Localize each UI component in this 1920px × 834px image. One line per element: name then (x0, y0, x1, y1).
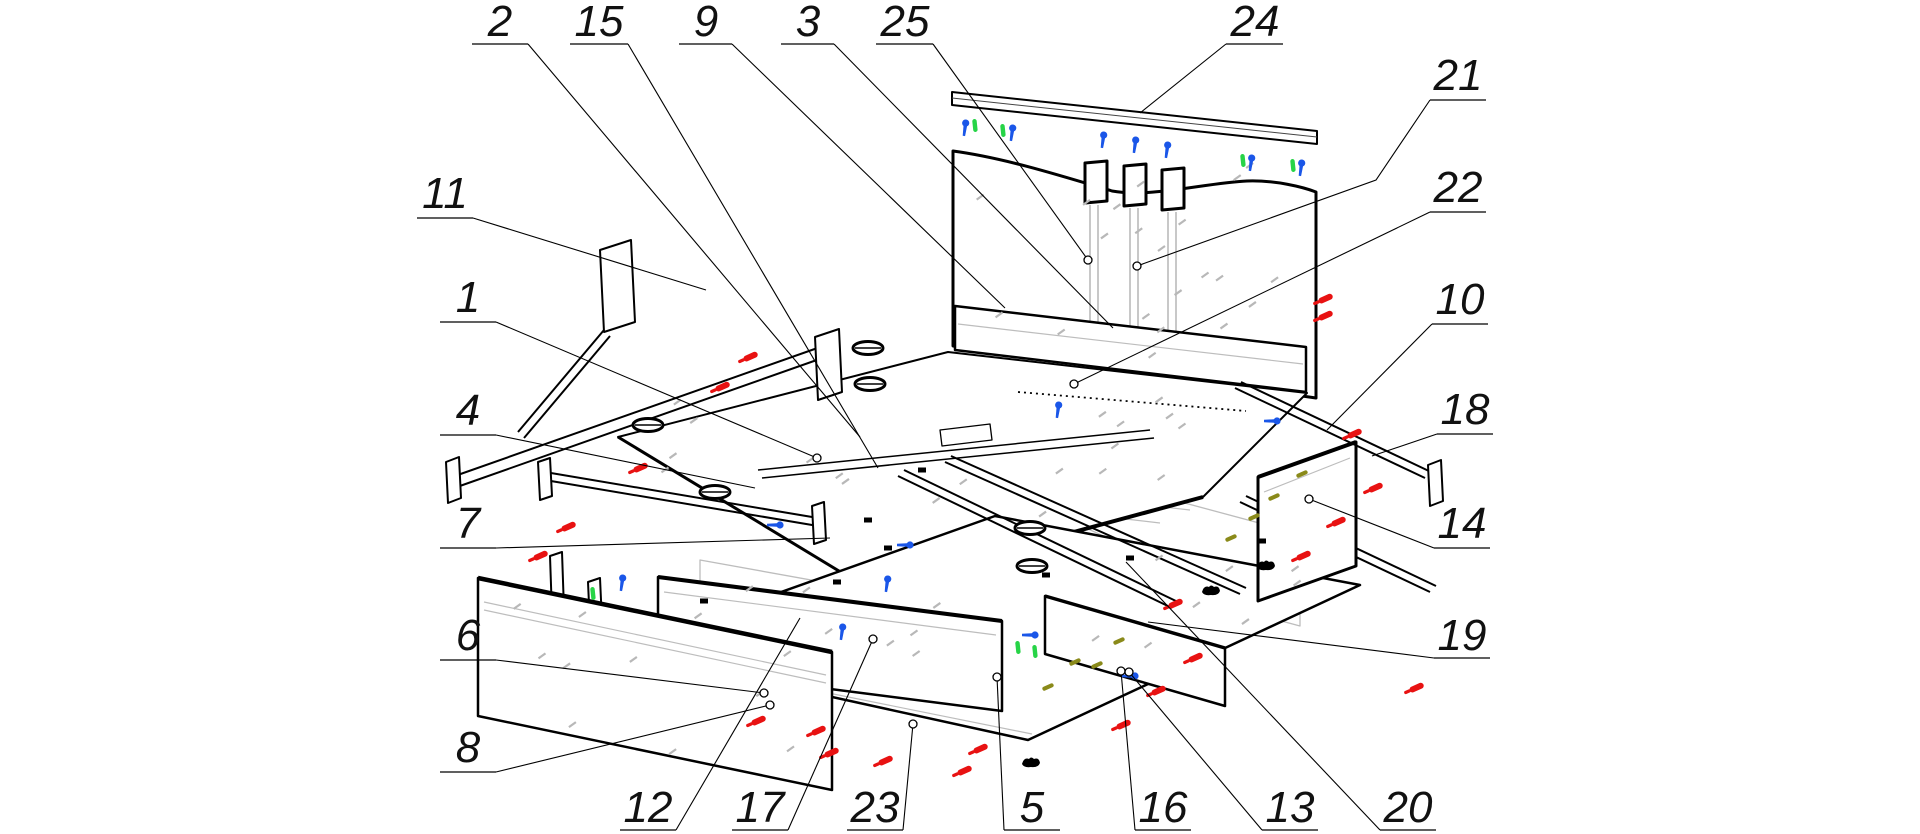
callout-label-7: 7 (456, 499, 482, 548)
red-cam-screw-icon (967, 743, 989, 757)
bracket-foot-icon (1022, 758, 1040, 768)
callout-21-target-circle (1133, 262, 1141, 270)
callout-22-target-circle (1070, 380, 1078, 388)
callout-label-9: 9 (694, 0, 718, 46)
pilot-hole-mark (1234, 175, 1241, 180)
red-cam-screw-icon (1362, 482, 1384, 496)
callout-13-target-circle (1125, 668, 1133, 676)
red-cam-screw-icon (527, 550, 549, 564)
left-upper-rail-a (518, 330, 604, 432)
red-cam-screw-icon (1110, 719, 1132, 733)
callout-16-target-circle (1117, 667, 1125, 675)
green-dowel-icon (972, 119, 978, 132)
callout-7-leader-line (496, 538, 830, 548)
callout-label-5: 5 (1020, 783, 1045, 832)
blue-screw-icon (1296, 159, 1305, 176)
callout-label-15: 15 (575, 0, 624, 46)
cam-housing-icon (884, 546, 892, 551)
callout-25-target-circle (1084, 256, 1092, 264)
callout-label-4: 4 (456, 386, 480, 435)
blue-screw-icon (960, 119, 969, 136)
callout-label-6: 6 (456, 611, 481, 660)
green-dowel-icon (1240, 154, 1246, 167)
callout-23-target-circle (909, 720, 917, 728)
callout-14-target-circle (1305, 495, 1313, 503)
headboard-slat-post-1 (1085, 161, 1107, 203)
left-upper-rail-b (524, 336, 610, 438)
callout-24-leader-line (1140, 44, 1226, 113)
cam-housing-icon (864, 518, 872, 523)
callout-label-21: 21 (1433, 51, 1483, 100)
callout-label-16: 16 (1139, 783, 1188, 832)
callout-10-leader-line (1327, 324, 1432, 430)
cam-housing-icon (1126, 556, 1134, 561)
callout-11-leader-line (473, 218, 706, 290)
callout-label-12: 12 (624, 783, 673, 832)
callout-16-leader-line (1121, 671, 1135, 830)
headboard-top-rail-inner (952, 98, 1317, 137)
headboard-slat-post-2 (1124, 164, 1146, 206)
blue-screw-icon (617, 574, 626, 591)
green-dowel-icon (1000, 124, 1006, 137)
cam-housing-icon (918, 468, 926, 473)
callout-label-19: 19 (1438, 611, 1487, 660)
callout-label-10: 10 (1436, 275, 1485, 324)
diagram-canvas: 2159325242122101814191114768121723516132… (0, 0, 1920, 834)
callout-2-leader-line (528, 44, 860, 437)
callout-18-leader-line (1372, 434, 1437, 456)
blue-screw-icon (1007, 124, 1016, 141)
blue-screw-icon (1162, 141, 1171, 158)
blue-screw-icon (1246, 154, 1255, 171)
red-cam-screw-icon (737, 351, 759, 365)
blue-screw-icon (1098, 131, 1107, 148)
callout-label-11: 11 (422, 169, 468, 218)
callout-8-target-circle (766, 701, 774, 709)
front-stretcher-cap-left (538, 458, 552, 500)
cam-housing-icon (1258, 539, 1266, 544)
left-side-rail-endplate-left (446, 457, 461, 503)
red-cam-screw-icon (1403, 682, 1425, 696)
callout-label-17: 17 (736, 783, 786, 832)
exploded-assembly-diagram: 2159325242122101814191114768121723516132… (0, 0, 1920, 834)
callout-label-22: 22 (1433, 163, 1483, 212)
left-upper-rail-plate (600, 240, 635, 332)
red-cam-screw-icon (872, 755, 894, 769)
green-dowel-icon (1290, 159, 1296, 172)
cam-housing-icon (1042, 573, 1050, 578)
callout-6-target-circle (760, 689, 768, 697)
callout-label-13: 13 (1266, 783, 1315, 832)
cam-housing-icon (700, 599, 708, 604)
blue-screw-icon (1130, 136, 1139, 153)
callout-label-25: 25 (880, 0, 930, 46)
olive-dowel-icon (1225, 534, 1238, 543)
callout-17-target-circle (869, 635, 877, 643)
callout-label-1: 1 (456, 273, 480, 322)
red-cam-screw-icon (555, 521, 577, 535)
callout-label-2: 2 (487, 0, 512, 46)
cam-housing-icon (833, 580, 841, 585)
callout-label-24: 24 (1230, 0, 1280, 46)
callout-label-23: 23 (850, 783, 900, 832)
callout-label-18: 18 (1441, 385, 1490, 434)
callout-label-14: 14 (1438, 499, 1487, 548)
callout-1-target-circle (813, 454, 821, 462)
callout-5-target-circle (993, 673, 1001, 681)
callout-label-3: 3 (796, 0, 821, 46)
callout-label-8: 8 (456, 723, 481, 772)
headboard-slat-post-3 (1162, 168, 1184, 210)
red-cam-screw-icon (951, 765, 973, 779)
callout-23-leader-line (903, 724, 913, 830)
callout-label-20: 20 (1383, 783, 1433, 832)
